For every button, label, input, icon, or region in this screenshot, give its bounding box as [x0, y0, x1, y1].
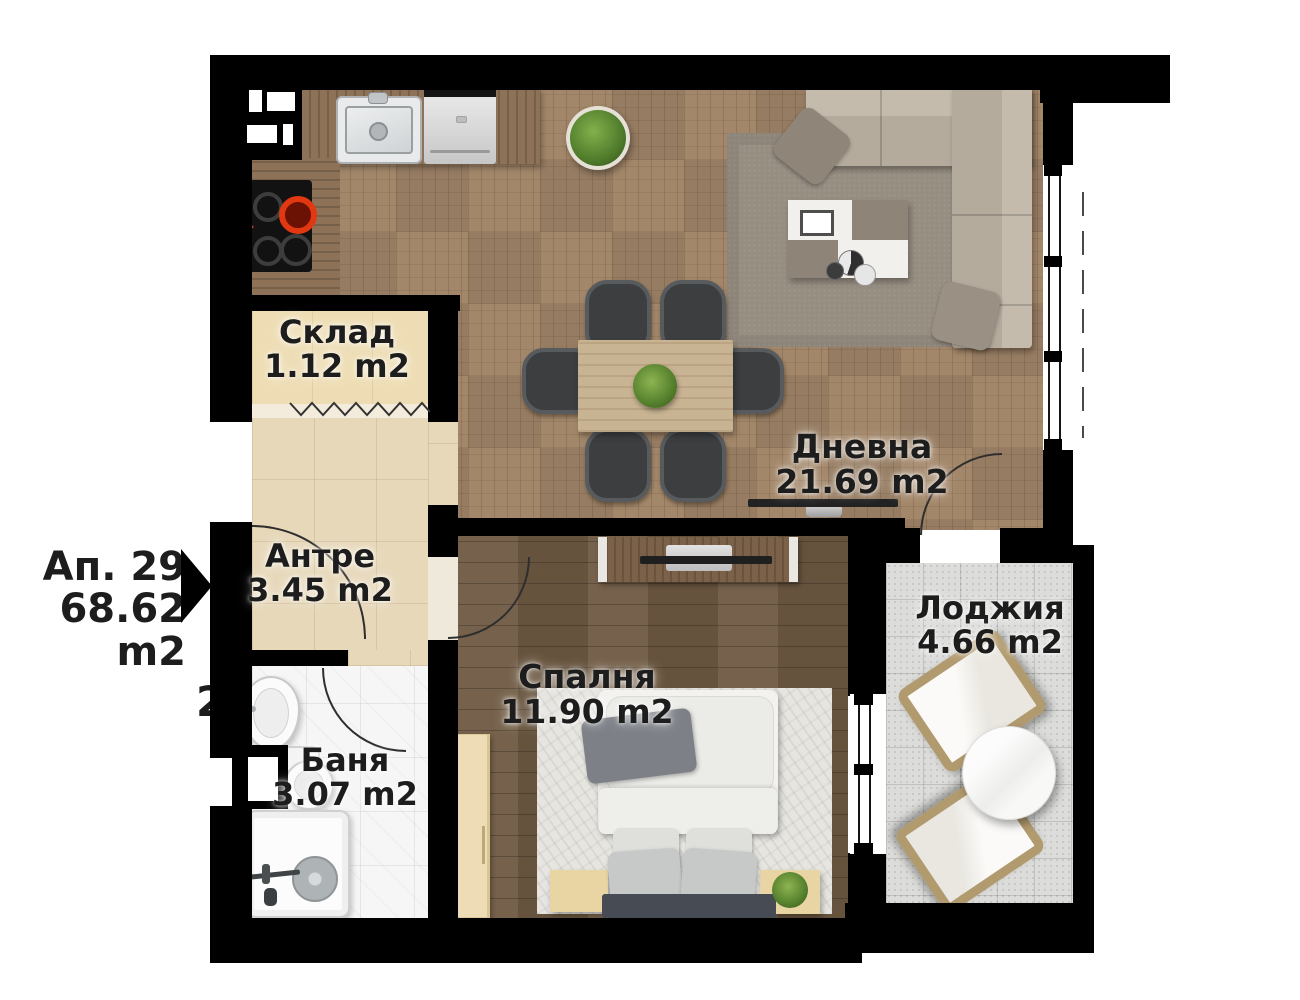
- apartment-area: 68.62 m2: [0, 588, 186, 673]
- nightstand-plant: [772, 872, 808, 908]
- potted-plant-kitchen: [566, 106, 630, 170]
- floor-plan: Ап. 29 68.62 m2 Склад 1.12 m2 Антре 3.45…: [0, 0, 1300, 1000]
- room-name: Лоджия: [890, 592, 1090, 626]
- room-area: 3.07 m2: [245, 778, 445, 812]
- room-name: Спалня: [487, 660, 687, 695]
- console-side-panel-right: [789, 537, 798, 582]
- wall-right-upper: [1043, 88, 1073, 170]
- burner-medium: [280, 234, 312, 266]
- plant-foliage: [570, 110, 626, 166]
- shaft-opening: [247, 125, 277, 143]
- room-label-loggia: Лоджия 4.66 m2: [890, 592, 1090, 660]
- apartment-number: Ап. 29: [0, 546, 186, 588]
- room-name: Антре: [220, 540, 420, 574]
- sink-faucet: [368, 92, 388, 104]
- room-name: Склад: [237, 316, 437, 350]
- tv-bedroom: [640, 556, 772, 564]
- dining-chair-bottom-left: [585, 428, 651, 502]
- dining-table-plant: [633, 364, 677, 408]
- kitchen-sink: [336, 96, 422, 164]
- wall-top: [210, 55, 1070, 90]
- console-side-panel-left: [598, 537, 607, 582]
- room-label-bedroom: Спалня 11.90 m2: [487, 660, 687, 730]
- room-area: 4.66 m2: [890, 626, 1090, 660]
- bathroom-door-threshold: [348, 650, 415, 666]
- room-label-bathroom: Баня 3.07 m2: [245, 744, 445, 812]
- wall-entry-right: [428, 505, 458, 557]
- room-area: 21.69 m2: [762, 465, 962, 500]
- shaft-opening: [249, 90, 262, 112]
- wall-loggia-top-right: [1000, 528, 1073, 563]
- room-name: Баня: [245, 744, 445, 778]
- coffee-table: [788, 200, 908, 278]
- sofa-cushion-divider: [952, 214, 1032, 216]
- wall-bedroom-right-lower: [848, 853, 886, 925]
- room-label-storage: Склад 1.12 m2: [237, 316, 437, 384]
- room-name: Дневна: [762, 430, 962, 465]
- coffee-table-plate-small: [826, 262, 844, 280]
- dining-chair-bottom-right: [660, 428, 726, 502]
- sink-drain: [369, 122, 388, 141]
- shaft-opening: [267, 92, 295, 111]
- window-frame-line: [1048, 165, 1050, 450]
- sofa-cushion-divider: [880, 86, 882, 166]
- window-mullion: [1044, 165, 1062, 176]
- room-label-living: Дневна 21.69 m2: [762, 430, 962, 500]
- bed-headboard: [602, 894, 776, 918]
- room-area: 11.90 m2: [487, 695, 687, 730]
- burner-active-red: [279, 196, 317, 234]
- window-mullion: [854, 694, 873, 705]
- shower-drain: [264, 888, 277, 906]
- entrance-arrow-icon: [181, 549, 212, 623]
- window-living-room: [1043, 165, 1073, 450]
- entry-living-passage-floor: [428, 418, 458, 506]
- window-mullion: [1044, 351, 1062, 362]
- kitchen-dishwasher: [424, 88, 496, 164]
- storage-threshold: [252, 404, 428, 418]
- dishwasher-logo: [456, 116, 467, 123]
- burner-small-2: [253, 236, 283, 266]
- window-mullion: [854, 764, 873, 775]
- coffee-table-photo-frame: [800, 210, 834, 236]
- window-mullion: [1044, 256, 1062, 267]
- apartment-label: Ап. 29 68.62 m2: [0, 546, 186, 673]
- wardrobe-handle: [482, 826, 485, 864]
- shaft-opening: [283, 124, 293, 145]
- wall-bathroom-top: [250, 650, 348, 666]
- room-area: 1.12 m2: [237, 350, 437, 384]
- shower-mixer: [262, 864, 270, 884]
- bedroom-tv-console: [598, 537, 798, 582]
- room-area: 3.45 m2: [220, 574, 420, 608]
- coffee-table-plate-light: [854, 264, 876, 286]
- wall-bedroom-right-upper: [848, 536, 886, 696]
- window-bedroom-loggia: [850, 694, 886, 854]
- room-label-entry: Антре 3.45 m2: [220, 540, 420, 608]
- bathroom-shower: [246, 810, 350, 918]
- kitchen-stove: [246, 180, 312, 272]
- shower-head: [292, 856, 338, 902]
- dishwasher-handle: [430, 150, 490, 153]
- window-mullion: [854, 843, 873, 854]
- window-mullion: [1044, 439, 1062, 450]
- window-frame-line: [1059, 165, 1061, 450]
- left-wall-bath-opening: [210, 758, 232, 806]
- loggia-round-table: [962, 726, 1056, 820]
- sink-bowl-inner: [253, 688, 289, 738]
- wall-bottom: [210, 918, 862, 963]
- wall-living-bedroom: [428, 518, 905, 536]
